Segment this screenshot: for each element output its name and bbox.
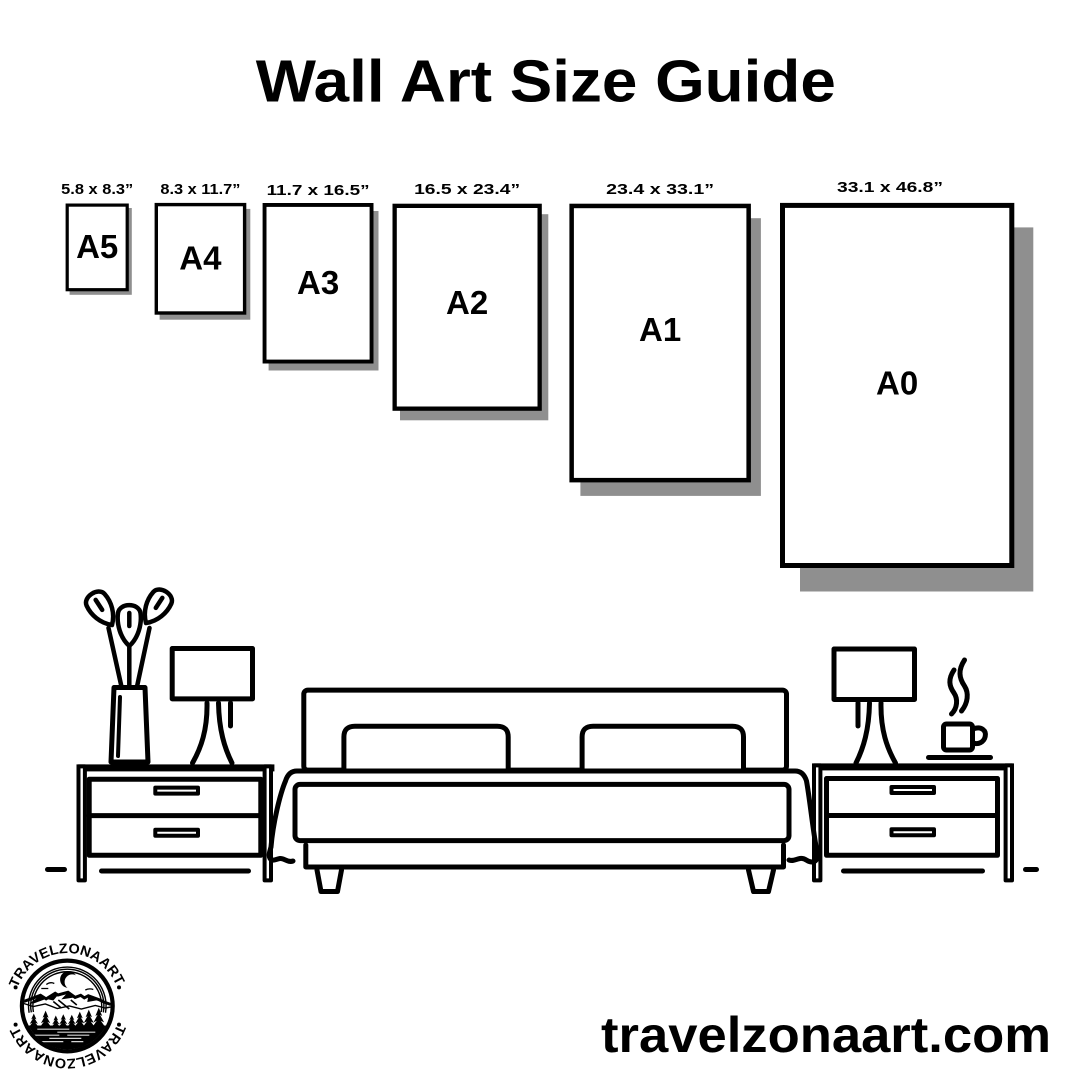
svg-text:11.7 x 16.5”: 11.7 x 16.5” (267, 183, 370, 199)
svg-text:23.4 x 33.1”: 23.4 x 33.1” (606, 182, 714, 198)
svg-text:8.3 x 11.7”: 8.3 x 11.7” (160, 182, 240, 198)
svg-text:A3: A3 (297, 264, 339, 301)
svg-text:A4: A4 (179, 240, 222, 277)
svg-text:33.1 x 46.8”: 33.1 x 46.8” (837, 180, 943, 196)
svg-text:A0: A0 (876, 365, 918, 402)
svg-text:A5: A5 (76, 228, 118, 265)
svg-text:A2: A2 (446, 284, 488, 321)
svg-text:5.8 x 8.3”: 5.8 x 8.3” (61, 182, 133, 198)
svg-text:travelzonaart.com: travelzonaart.com (601, 1007, 1051, 1063)
svg-text:Wall Art Size Guide: Wall Art Size Guide (256, 49, 836, 115)
svg-text:16.5 x 23.4”: 16.5 x 23.4” (414, 182, 520, 198)
svg-text:A1: A1 (639, 311, 681, 348)
